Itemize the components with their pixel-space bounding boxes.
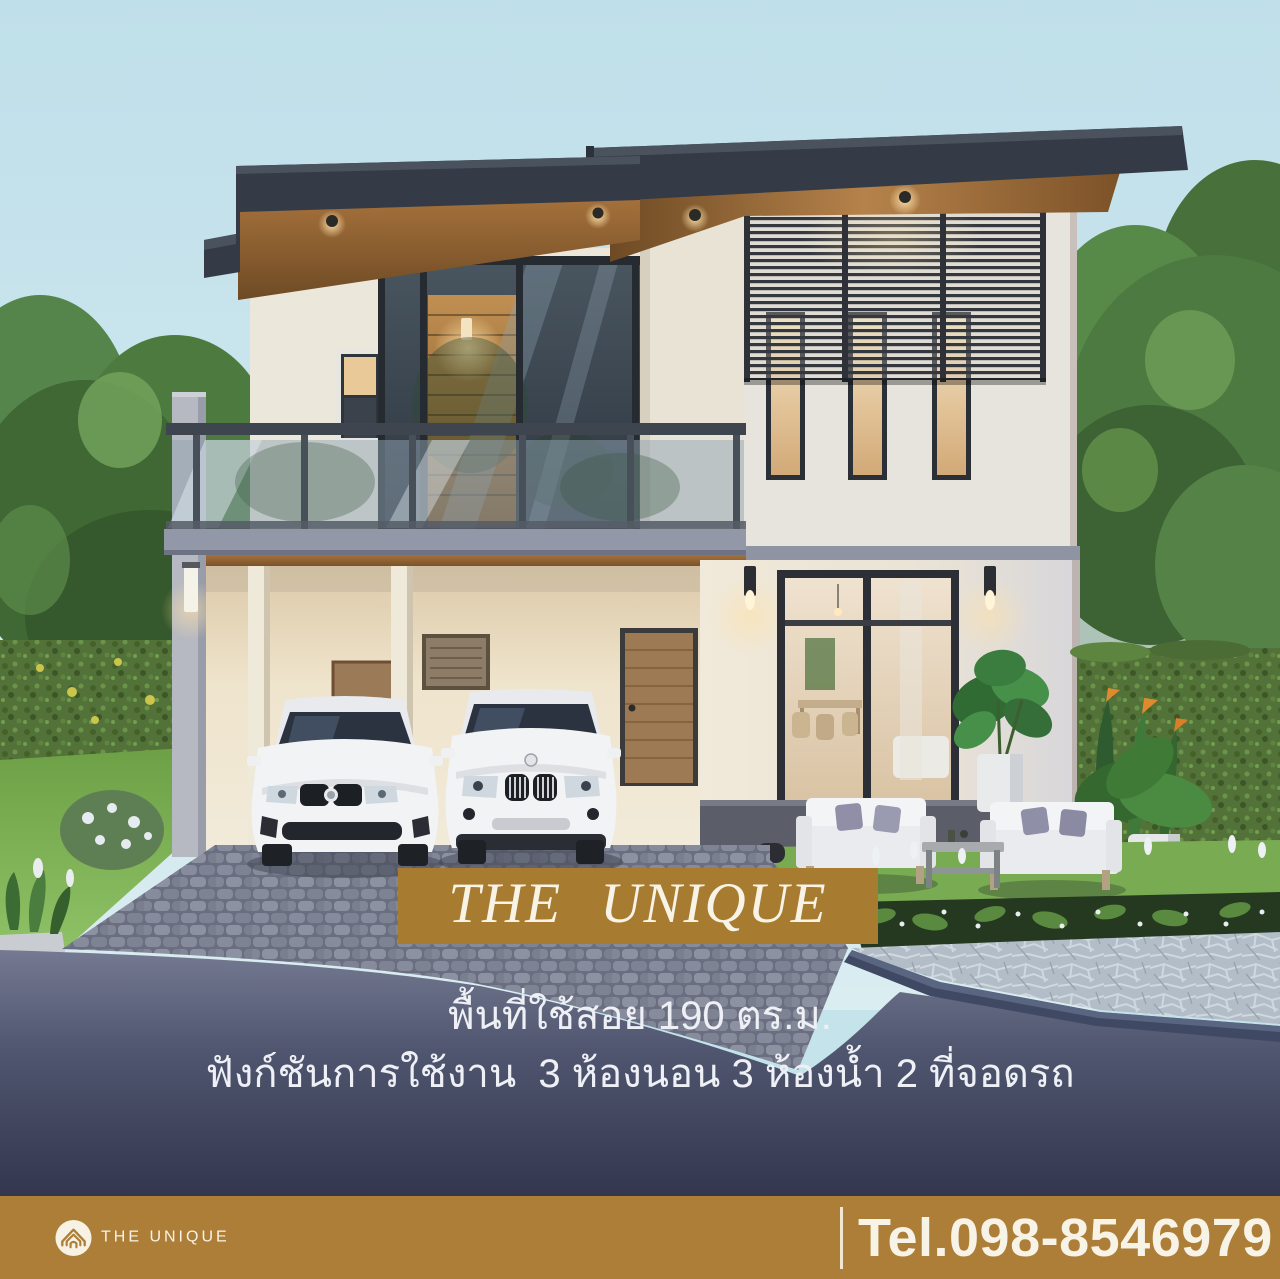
divider xyxy=(840,1207,843,1269)
brand-banner: THE UNIQUE xyxy=(398,868,878,944)
spec-functions: ฟังก์ชันการใช้งาน 3 ห้องนอน 3 ห้องน้ำ 2 … xyxy=(0,1051,1280,1097)
brand-banner-title: THE UNIQUE xyxy=(448,871,827,942)
spec-usable-area: พื้นที่ใช้สอย 190 ตร.ม. xyxy=(0,993,1280,1039)
balcony xyxy=(164,423,746,569)
upper-right-wall xyxy=(744,198,1077,560)
glass-door xyxy=(777,570,959,810)
car-suv xyxy=(439,689,623,876)
footer-contact: Tel.098-8546979 xyxy=(840,1196,1273,1279)
house-logo-icon xyxy=(55,1219,92,1256)
entrance-door xyxy=(620,628,698,786)
footer-logo: THE UNIQUE xyxy=(55,1219,230,1256)
phone-number: Tel.098-8546979 xyxy=(858,1207,1273,1269)
louver-screen xyxy=(744,198,1046,385)
footer-bar: THE UNIQUE Tel.098-8546979 xyxy=(0,1196,1280,1279)
footer-brand-label: THE UNIQUE xyxy=(101,1229,230,1247)
ad-poster: THE UNIQUE พื้นที่ใช้สอย 190 ตร.ม. ฟังก์… xyxy=(0,0,1280,1279)
